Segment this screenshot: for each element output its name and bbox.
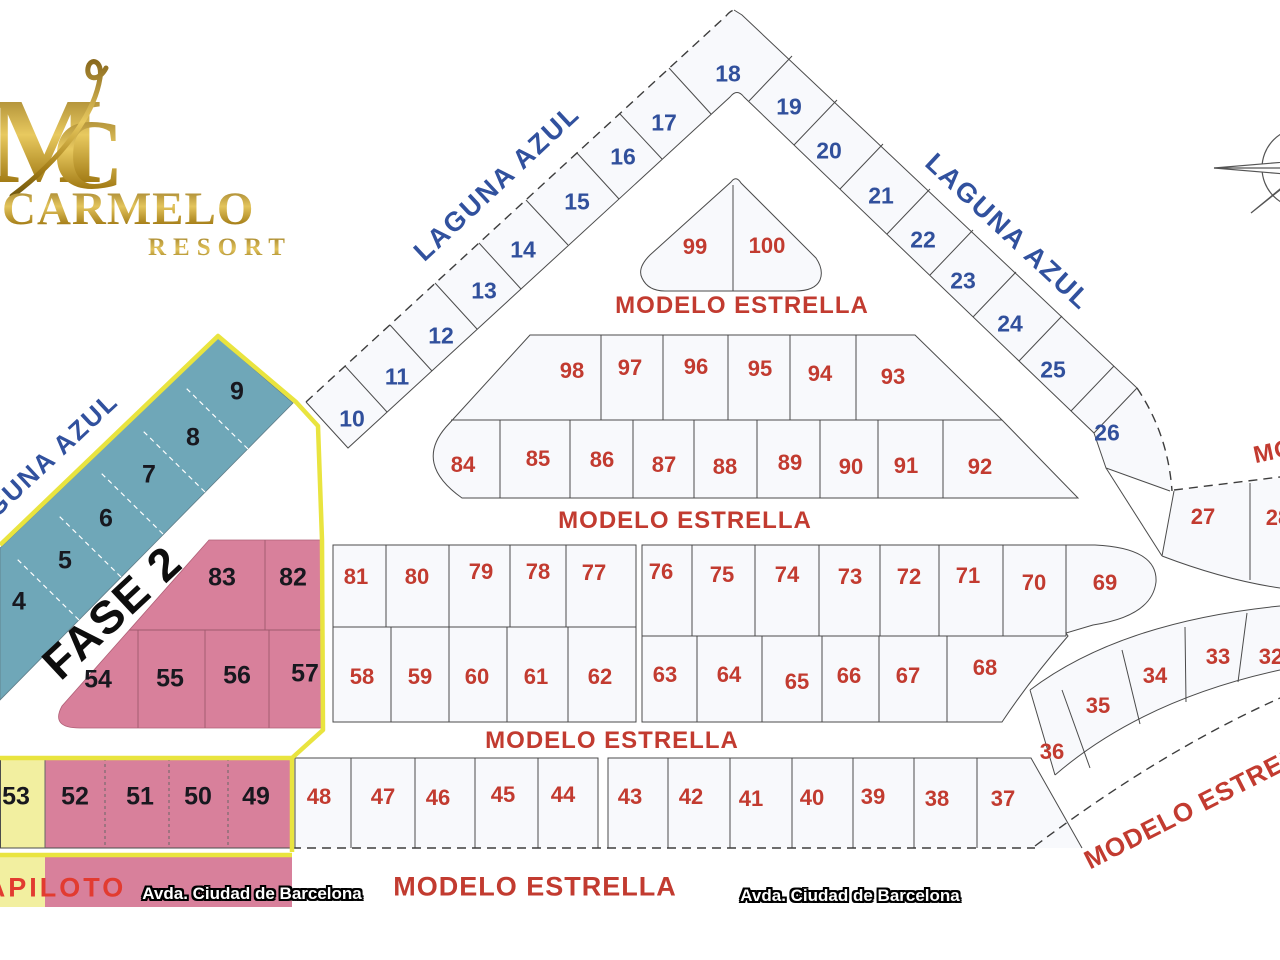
- piloto-strip-yellow: [0, 856, 45, 907]
- logo: CARMELO RESORT: [0, 24, 300, 274]
- logo-subtitle: RESORT: [148, 234, 292, 262]
- piloto-strip-pink: [45, 856, 292, 907]
- fase2-area: [0, 338, 323, 907]
- site-plan: M C CARMELO RESORT 101112131415161718192…: [0, 0, 1280, 960]
- compass-icon: [1214, 92, 1280, 244]
- lot53-yellow: [0, 758, 45, 848]
- logo-title: CARMELO: [2, 182, 254, 236]
